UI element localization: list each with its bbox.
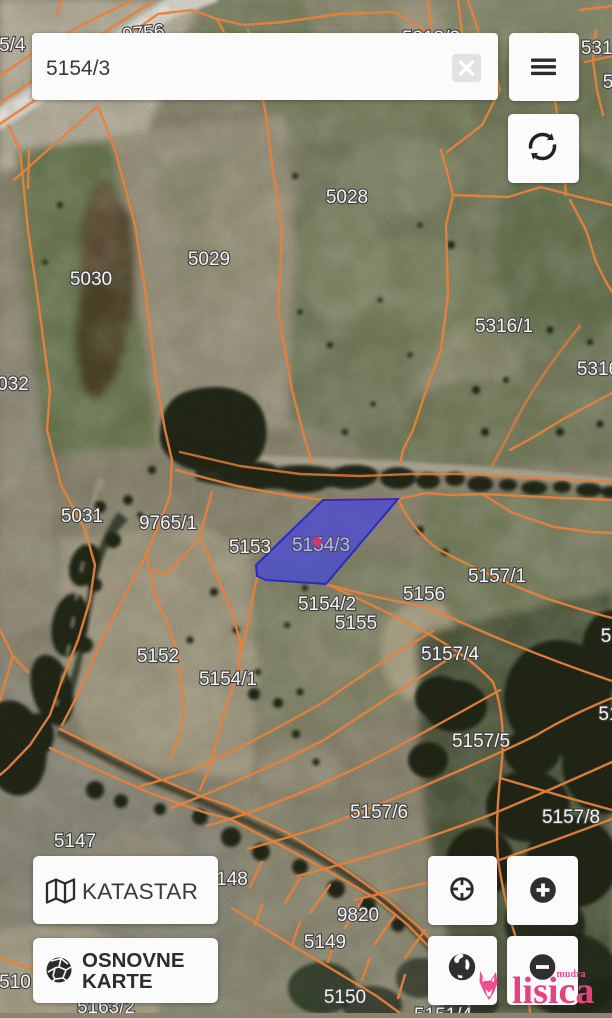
svg-text:9765/1: 9765/1 (139, 513, 197, 534)
svg-text:lisica: lisica (512, 970, 594, 1012)
svg-text:5315: 5315 (581, 38, 612, 59)
svg-text:510: 510 (0, 972, 31, 993)
svg-text:5: 5 (603, 72, 612, 93)
svg-text:5031: 5031 (61, 506, 103, 527)
svg-text:5153: 5153 (229, 537, 271, 558)
svg-text:5157/8: 5157/8 (542, 807, 600, 828)
svg-text:51: 51 (598, 704, 612, 725)
svg-text:5154/3: 5154/3 (292, 535, 350, 556)
svg-text:148: 148 (216, 869, 248, 890)
svg-text:9820: 9820 (337, 905, 379, 926)
svg-text:5028: 5028 (326, 187, 368, 208)
svg-text:5156: 5156 (403, 584, 445, 605)
svg-text:5316/1: 5316/1 (475, 316, 533, 337)
svg-text:5029: 5029 (188, 249, 230, 270)
svg-text:5151/4: 5151/4 (414, 1005, 473, 1013)
svg-text:KATASTAR: KATASTAR (82, 879, 198, 904)
svg-text:5030: 5030 (70, 269, 112, 290)
svg-text:5157/6: 5157/6 (350, 802, 408, 823)
svg-text:5: 5 (601, 626, 612, 647)
svg-text:5147: 5147 (54, 831, 96, 852)
svg-text:5152: 5152 (137, 646, 179, 667)
svg-text:5150: 5150 (324, 987, 366, 1008)
svg-text:5157/5: 5157/5 (452, 731, 510, 752)
svg-text:5157/4: 5157/4 (421, 644, 480, 665)
svg-text:5154/1: 5154/1 (199, 669, 257, 690)
svg-text:KARTE: KARTE (82, 970, 153, 993)
svg-text:5154/2: 5154/2 (298, 594, 356, 615)
svg-text:5149: 5149 (304, 932, 346, 953)
svg-text:5155: 5155 (335, 613, 377, 634)
svg-text:OSNOVNE: OSNOVNE (82, 949, 185, 972)
svg-text:032: 032 (0, 374, 29, 395)
svg-text:5316: 5316 (577, 359, 612, 380)
svg-text:05/4: 05/4 (0, 35, 26, 56)
svg-text:5157/1: 5157/1 (468, 566, 526, 587)
